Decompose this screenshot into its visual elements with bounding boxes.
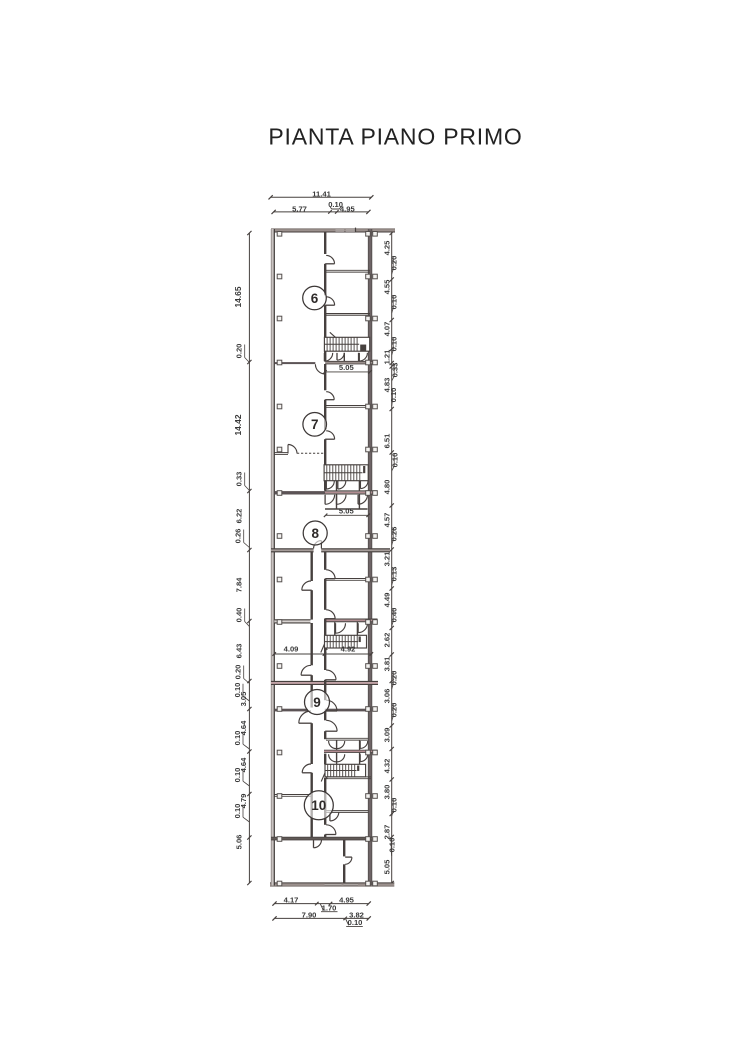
svg-text:6: 6: [311, 291, 319, 306]
svg-text:0.10: 0.10: [390, 295, 399, 310]
svg-text:0.10: 0.10: [233, 804, 242, 819]
svg-text:2.62: 2.62: [383, 633, 392, 648]
svg-text:0.10: 0.10: [390, 798, 399, 813]
svg-text:0.20: 0.20: [235, 344, 244, 359]
svg-text:5.06: 5.06: [234, 835, 243, 850]
svg-text:0.20: 0.20: [390, 256, 399, 271]
svg-text:3.21: 3.21: [383, 551, 392, 567]
svg-text:0.33: 0.33: [235, 472, 244, 487]
svg-text:0.10: 0.10: [233, 731, 242, 746]
svg-text:6.22: 6.22: [234, 509, 243, 524]
svg-text:0.10: 0.10: [391, 453, 400, 468]
svg-text:7.90: 7.90: [302, 911, 317, 920]
svg-text:PIANTA PIANO PRIMO: PIANTA PIANO PRIMO: [268, 124, 522, 150]
svg-text:2.87: 2.87: [383, 825, 392, 840]
svg-text:0.40: 0.40: [390, 608, 399, 623]
svg-text:4.95: 4.95: [339, 896, 355, 905]
svg-text:3.06: 3.06: [383, 689, 392, 704]
svg-text:6.43: 6.43: [234, 644, 243, 659]
svg-text:6.51: 6.51: [383, 433, 392, 449]
svg-text:4.92: 4.92: [341, 645, 356, 654]
svg-text:5.77: 5.77: [292, 204, 307, 213]
svg-text:9: 9: [313, 695, 321, 710]
svg-text:4.25: 4.25: [383, 240, 392, 256]
svg-text:5.05: 5.05: [339, 363, 355, 372]
svg-text:4.80: 4.80: [383, 480, 392, 495]
svg-text:3.80: 3.80: [383, 785, 392, 800]
svg-text:0.10: 0.10: [233, 768, 242, 783]
svg-text:3.05: 3.05: [239, 691, 248, 707]
svg-text:14.65: 14.65: [233, 286, 243, 307]
svg-text:4.32: 4.32: [383, 759, 392, 774]
svg-text:11.41: 11.41: [312, 190, 331, 199]
svg-text:0.33: 0.33: [391, 363, 400, 378]
svg-text:4.17: 4.17: [284, 896, 299, 905]
svg-text:8: 8: [311, 526, 319, 541]
svg-text:0.13: 0.13: [390, 567, 399, 582]
svg-text:0.40: 0.40: [235, 608, 244, 623]
svg-text:0.10: 0.10: [348, 918, 363, 927]
svg-text:4.09: 4.09: [284, 645, 299, 654]
svg-text:0.20: 0.20: [390, 671, 399, 686]
svg-text:3.09: 3.09: [383, 728, 392, 743]
svg-text:14.42: 14.42: [233, 414, 243, 435]
svg-text:0.20: 0.20: [390, 703, 399, 718]
svg-text:4.55: 4.55: [383, 279, 392, 295]
svg-text:0.10: 0.10: [389, 388, 398, 403]
svg-text:7: 7: [311, 417, 319, 432]
svg-text:4.57: 4.57: [383, 513, 392, 528]
svg-text:10: 10: [311, 798, 326, 813]
svg-text:0.20: 0.20: [234, 665, 243, 680]
svg-text:4.49: 4.49: [383, 593, 392, 608]
svg-text:3.81: 3.81: [383, 656, 392, 672]
svg-text:7.84: 7.84: [234, 577, 243, 593]
svg-text:0.10: 0.10: [390, 337, 399, 352]
svg-text:0.26: 0.26: [234, 529, 243, 544]
svg-text:0.26: 0.26: [390, 527, 399, 542]
svg-text:5.05: 5.05: [339, 507, 355, 516]
svg-text:0.10: 0.10: [388, 838, 397, 853]
svg-text:5.05: 5.05: [383, 859, 392, 875]
svg-text:4.07: 4.07: [383, 322, 392, 337]
